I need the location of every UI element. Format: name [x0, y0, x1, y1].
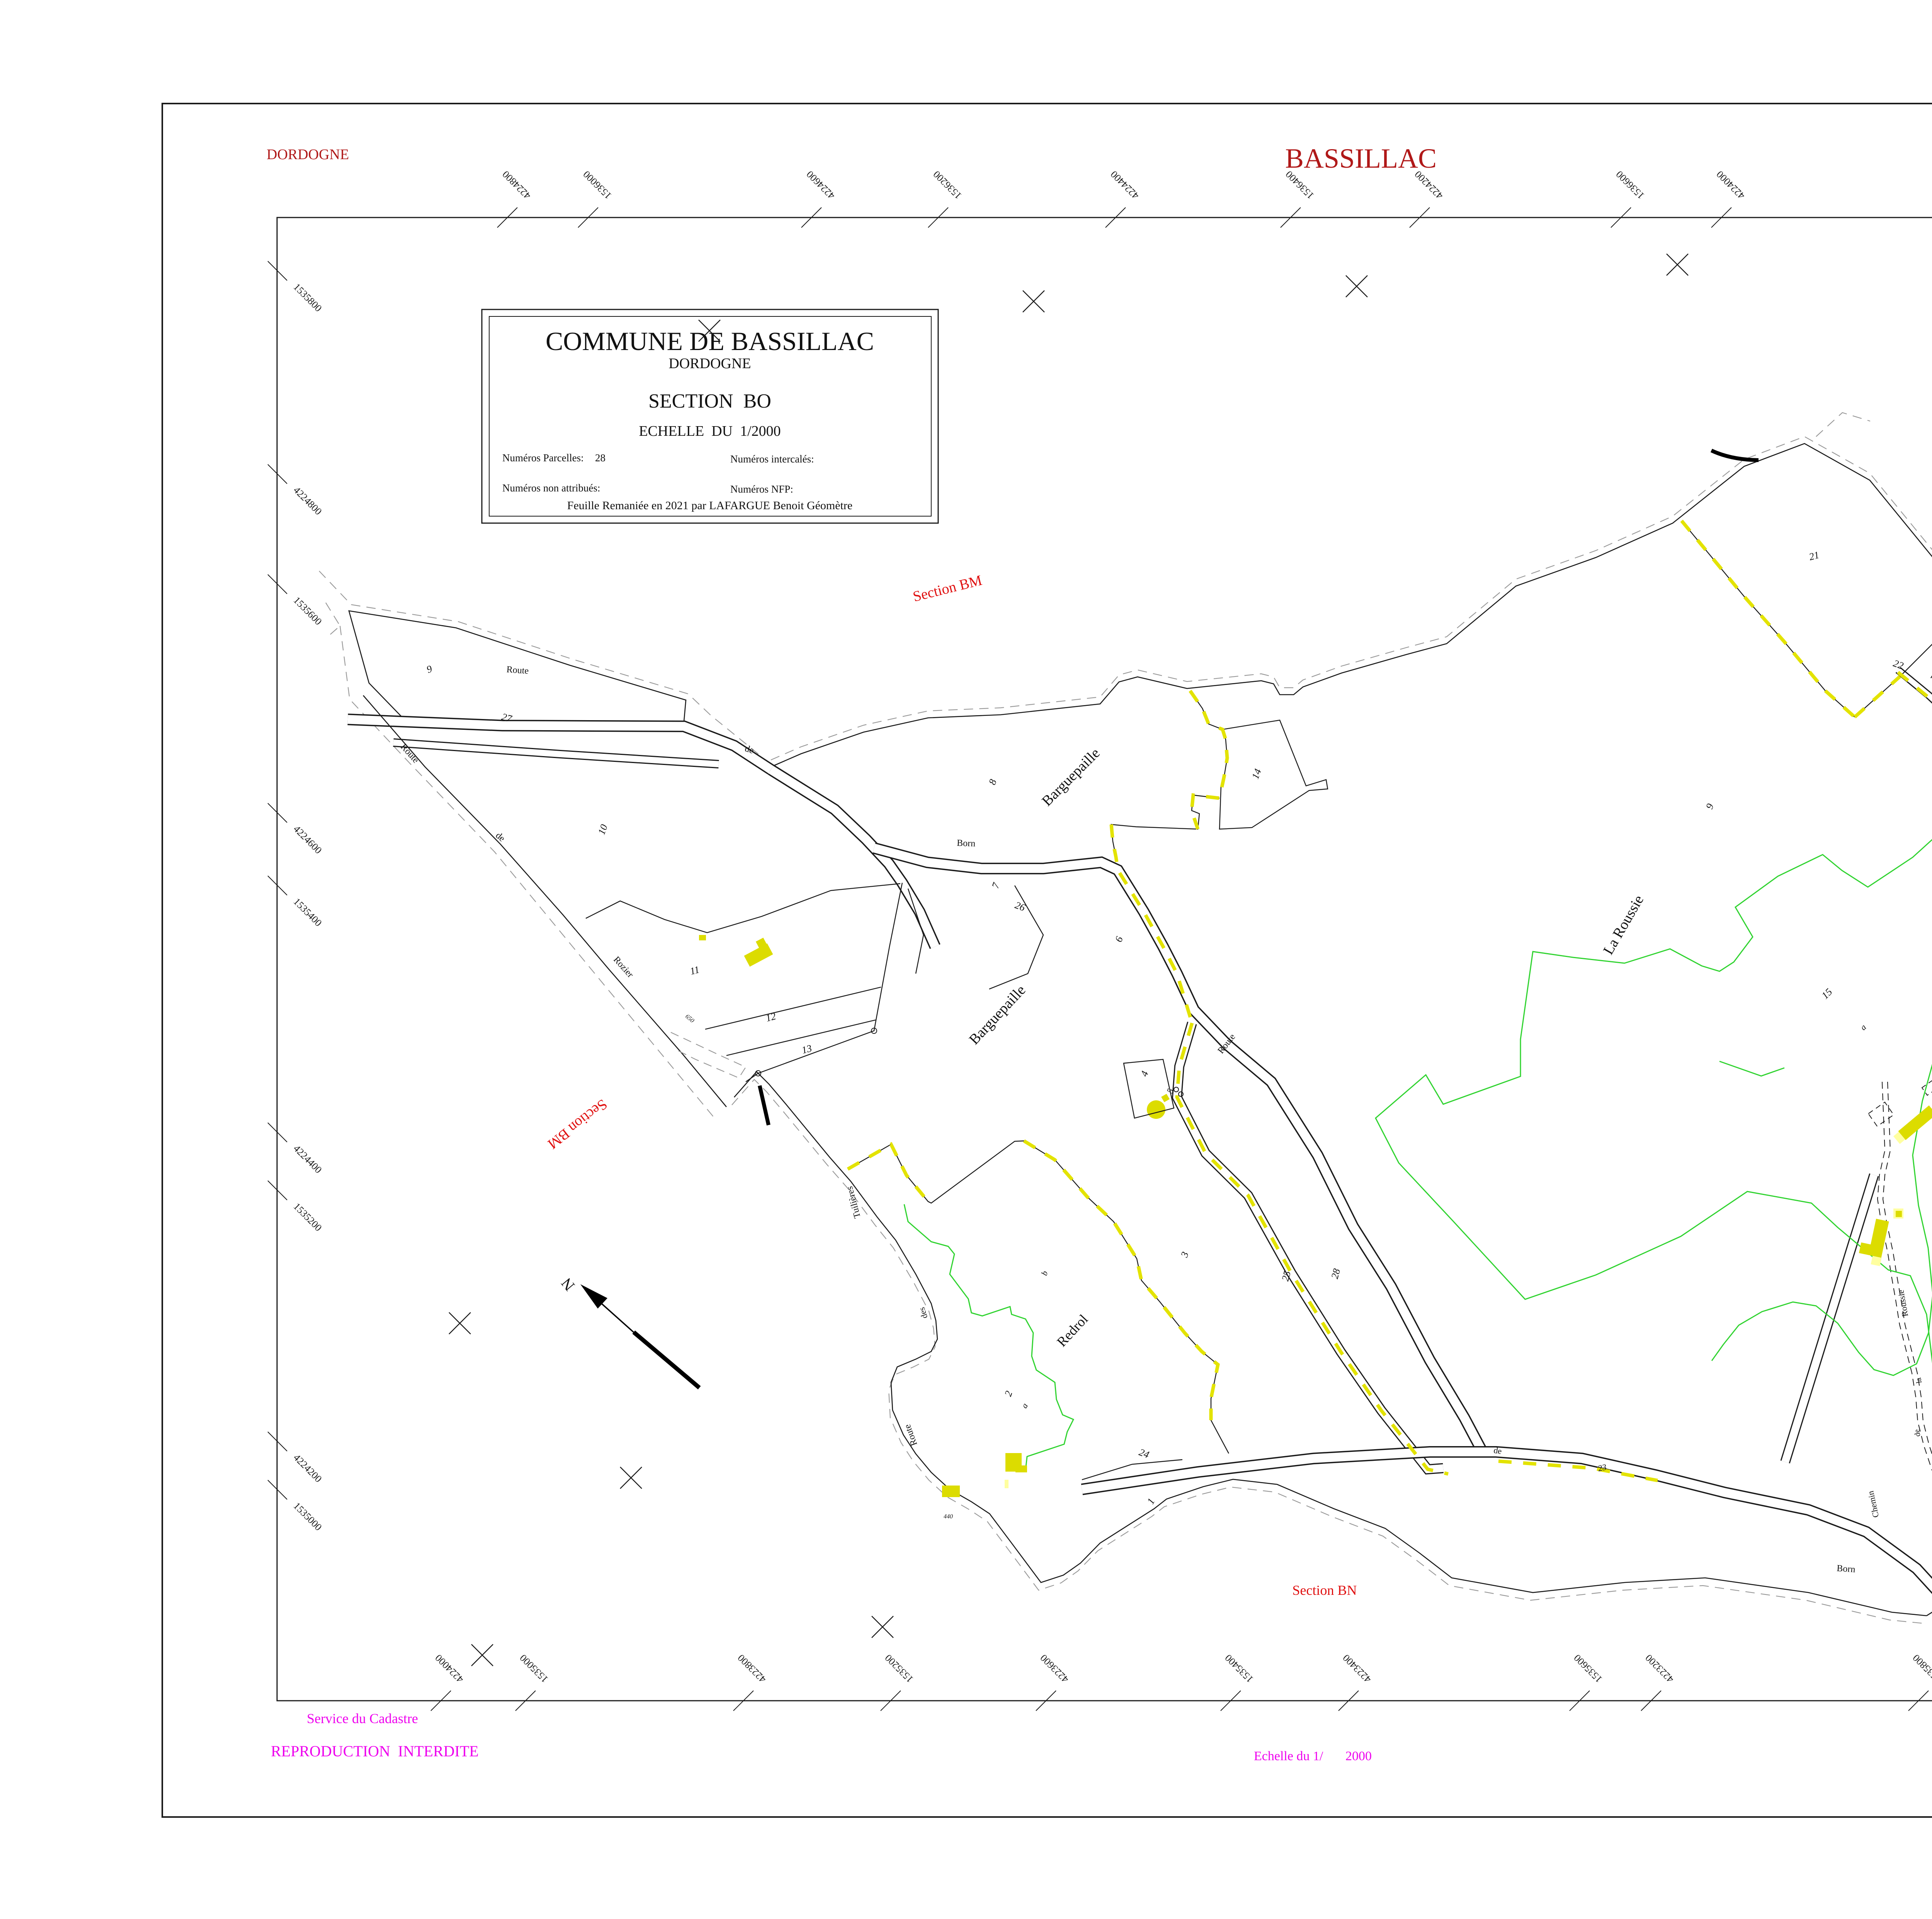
svg-text:Feuille Remaniée en 2021 par L: Feuille Remaniée en 2021 par LAFARGUE Be… [567, 499, 852, 512]
svg-text:Numéros Parcelles:: Numéros Parcelles: [502, 452, 584, 464]
svg-text:Echelle du 1/: Echelle du 1/ [1254, 1749, 1323, 1763]
svg-text:Born: Born [1837, 1563, 1856, 1574]
svg-text:DORDOGNE: DORDOGNE [668, 355, 751, 372]
svg-text:de: de [1493, 1445, 1502, 1456]
svg-text:ECHELLE DU 1/2000: ECHELLE DU 1/2000 [639, 423, 781, 439]
svg-text:Numéros non attribués:: Numéros non attribués: [502, 482, 600, 494]
svg-text:REPRODUCTION INTERDITE: REPRODUCTION INTERDITE [271, 1742, 479, 1760]
svg-text:Service du Cadastre: Service du Cadastre [307, 1711, 418, 1726]
svg-text:Born: Born [957, 838, 976, 849]
svg-text:Section BN: Section BN [1293, 1582, 1357, 1598]
svg-text:Numéros intercalés:: Numéros intercalés: [730, 453, 814, 465]
svg-text:2000: 2000 [1345, 1749, 1372, 1763]
svg-text:28: 28 [595, 452, 605, 464]
svg-text:440: 440 [944, 1513, 953, 1520]
svg-text:BASSILLAC: BASSILLAC [1285, 143, 1437, 174]
svg-text:Route: Route [506, 665, 529, 676]
svg-text:DORDOGNE: DORDOGNE [267, 146, 349, 163]
svg-text:de: de [1913, 1429, 1922, 1438]
svg-text:SECTION BO: SECTION BO [648, 390, 771, 412]
svg-text:Numéros NFP:: Numéros NFP: [730, 483, 793, 495]
